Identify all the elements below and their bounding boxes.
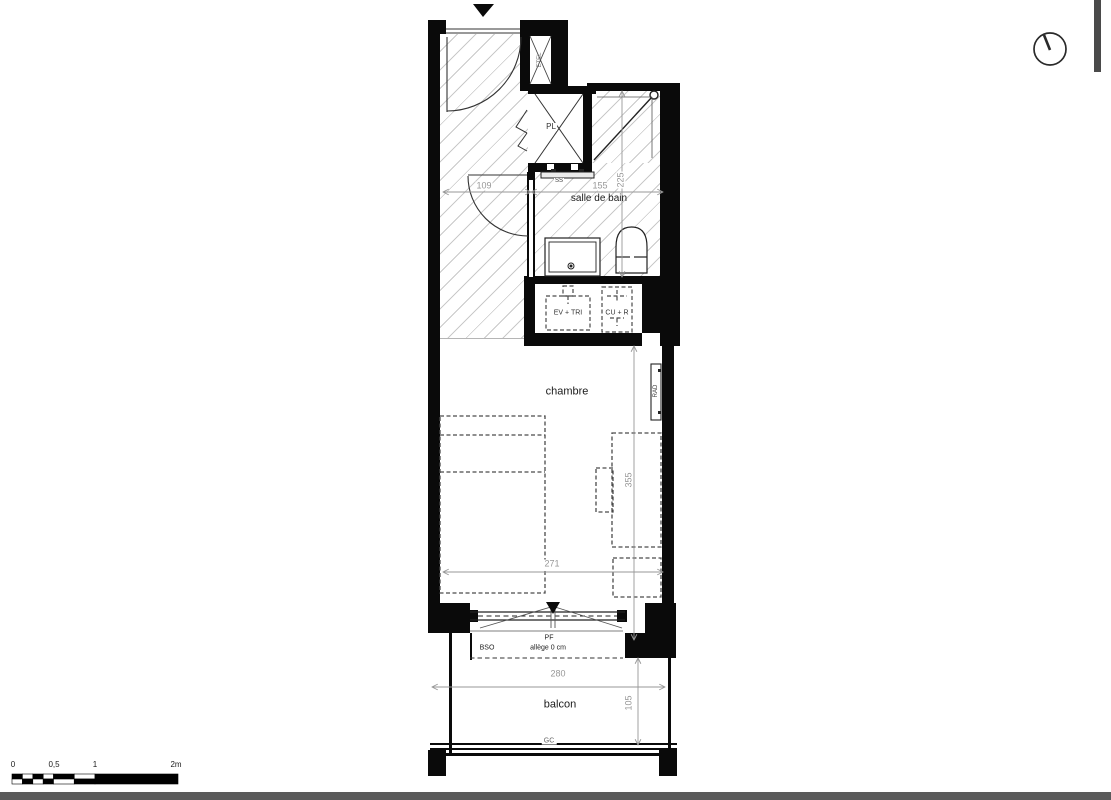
dim-room-depth: 355 [625, 471, 634, 488]
bed [440, 416, 545, 593]
dim-room-width: 271 [543, 560, 560, 569]
shower-drain-line [594, 91, 658, 160]
scale-two: 2m [170, 761, 181, 769]
entrance-door [446, 29, 521, 112]
plan-linework [0, 0, 1111, 800]
toilet [616, 227, 647, 273]
dim-balcony-width: 280 [549, 670, 566, 679]
railing-label: GC [542, 738, 557, 745]
bedroom-label: chambre [546, 387, 589, 398]
sink-unit-label: EV + TRI [554, 310, 582, 317]
dim-balcony-depth: 105 [625, 694, 634, 711]
balcony-label: balcon [544, 700, 576, 711]
scale-half: 0,5 [48, 761, 59, 769]
closet-label: PL [545, 123, 557, 131]
radiator-label: RAD [653, 385, 659, 398]
dim-bath-width: 155 [591, 182, 608, 191]
dim-hall-width: 109 [475, 182, 492, 191]
shaft-label: ETEL [537, 52, 543, 67]
dim-bath-depth: 225 [617, 171, 626, 188]
scale-bar [12, 774, 178, 784]
bathroom-label: salle de bain [571, 194, 627, 204]
towel-dryer-label: SS [554, 178, 564, 184]
french-window-label: PF [545, 635, 554, 642]
floor-plan-sheet: salle de bain chambre balcon PL ETEL SS … [0, 0, 1111, 800]
sill-label: allège 0 cm [530, 645, 566, 652]
towel-dryer [541, 169, 594, 178]
scale-zero: 0 [11, 761, 15, 769]
closet-folding-door [516, 110, 527, 151]
shower-tray [545, 238, 600, 276]
scale-one: 1 [93, 761, 97, 769]
north-arrow-icon [1034, 33, 1066, 65]
closet-cross [535, 94, 583, 163]
blind-label: BSO [480, 645, 495, 652]
cooktop-fridge-label: CU + R [605, 310, 628, 317]
entrance-arrow-icon [473, 4, 494, 17]
